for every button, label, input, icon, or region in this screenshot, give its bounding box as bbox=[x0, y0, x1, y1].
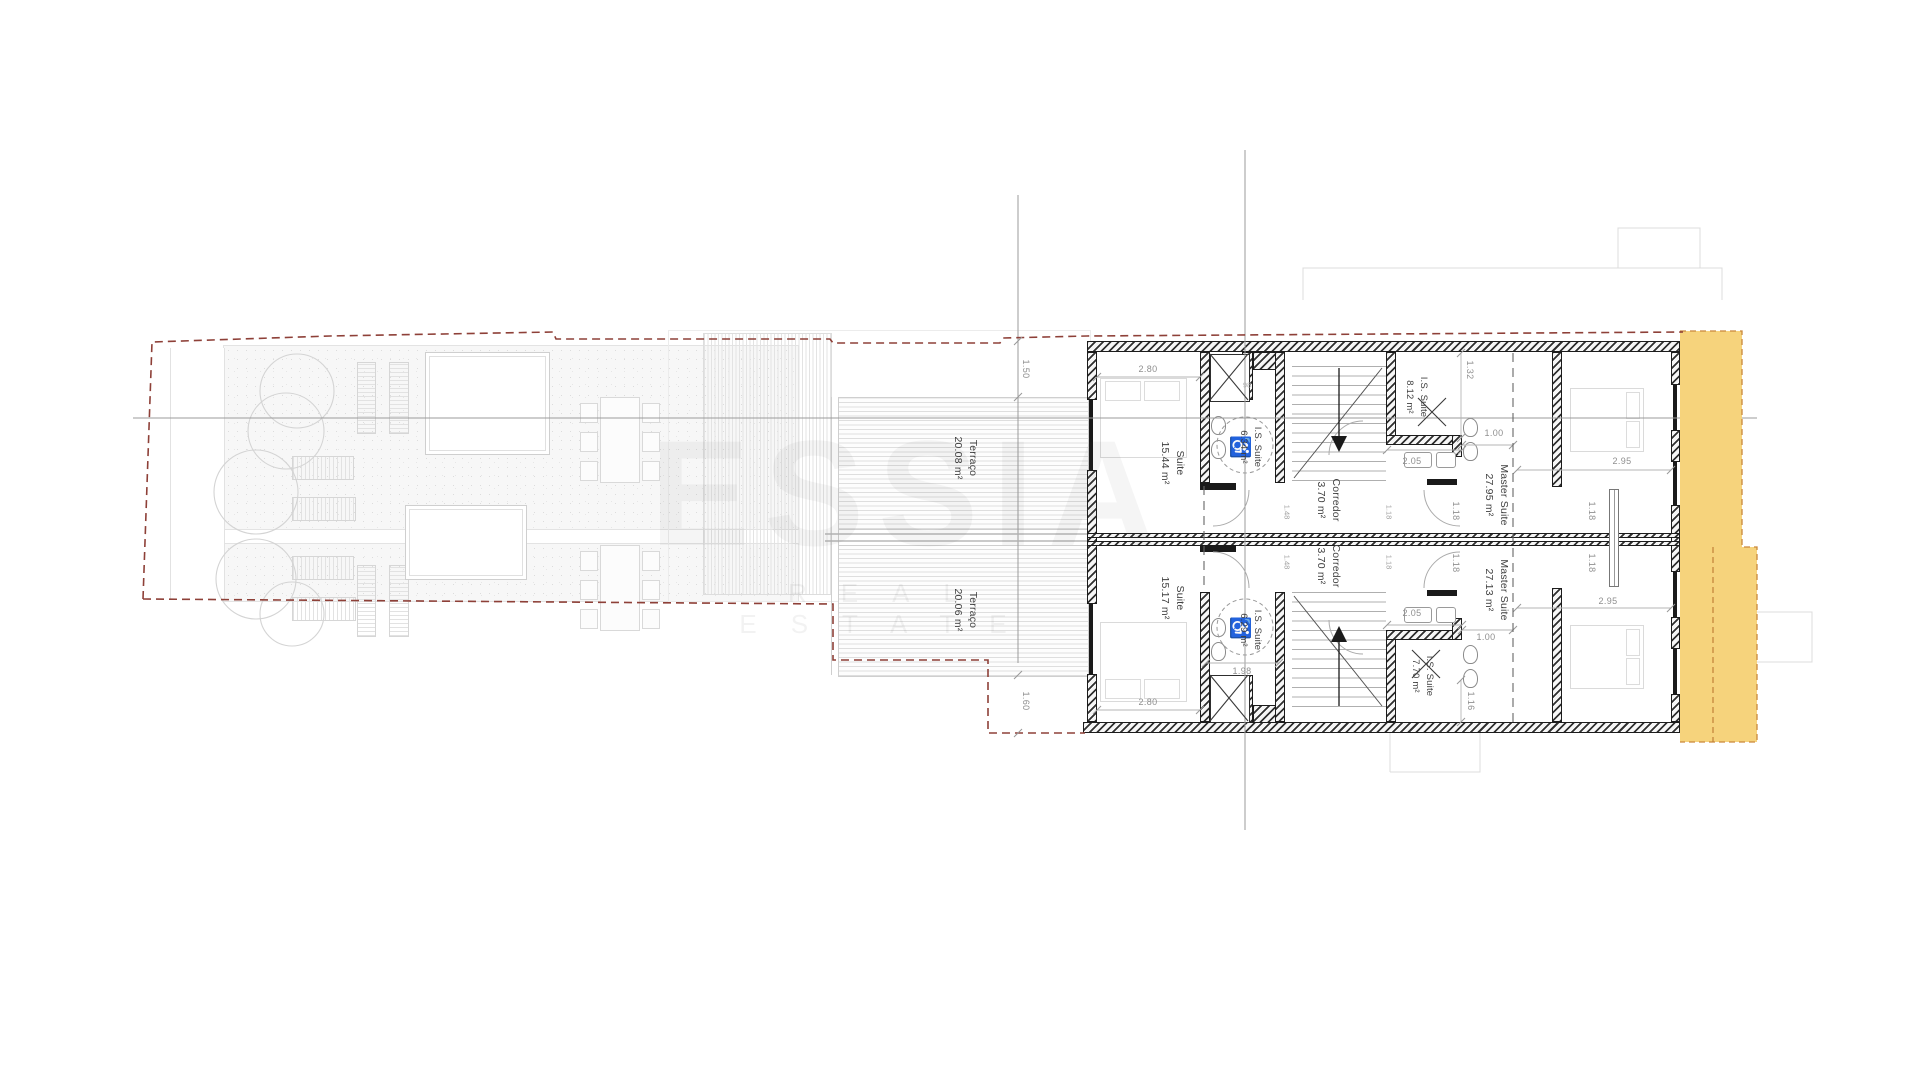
dim-door: 1.48 bbox=[1283, 505, 1292, 520]
dim-suite-width-b: 2.80 bbox=[1138, 697, 1157, 707]
dim-door: 1.48 bbox=[1283, 555, 1292, 570]
room-area: 7.70 m² bbox=[1408, 656, 1422, 697]
room-name: Suite bbox=[1172, 441, 1187, 484]
room-label-suite-a: Suite 15.44 m² bbox=[1157, 441, 1187, 484]
room-name: I.S. Suite bbox=[1250, 610, 1264, 651]
stair-arrow-up-icon bbox=[1331, 626, 1347, 642]
room-area: 27.95 m² bbox=[1481, 464, 1496, 525]
stair-break-line bbox=[1294, 368, 1382, 706]
dim-counter-a: 2.05 bbox=[1402, 456, 1421, 466]
dim-master-width-b: 2.95 bbox=[1598, 596, 1617, 606]
tree-icon bbox=[248, 393, 324, 469]
room-name: Terraço bbox=[965, 436, 980, 479]
room-area: 20.06 m² bbox=[950, 588, 965, 631]
room-area: 6.29 m² bbox=[1236, 610, 1250, 651]
tree-icon bbox=[214, 450, 298, 534]
dim-lines bbox=[1097, 353, 1671, 722]
room-area: 3.70 m² bbox=[1313, 478, 1328, 521]
room-area: 15.17 m² bbox=[1157, 576, 1172, 619]
floor-plan-canvas: ESSIA REAL ESTATE ♿ ♿ Terraço 20.08 m² T… bbox=[0, 0, 1920, 1080]
shower-x-icon bbox=[1210, 354, 1248, 400]
room-label-corridor-a: Corredor 3.70 m² bbox=[1313, 478, 1343, 521]
dim-door-small: 1.18 bbox=[1385, 555, 1394, 570]
dim-setback-top: 1.50 bbox=[1021, 359, 1031, 378]
dim-suite-width-a: 2.80 bbox=[1138, 364, 1157, 374]
tree-icon bbox=[260, 582, 324, 646]
room-name: I.S. Suite bbox=[1250, 427, 1264, 468]
dim-closet: 1.18 bbox=[1451, 553, 1461, 572]
dim-bath-a: 1.32 bbox=[1465, 360, 1475, 379]
room-label-terrace-a: Terraço 20.08 m² bbox=[950, 436, 980, 479]
room-area: 15.44 m² bbox=[1157, 441, 1172, 484]
room-name: Corredor bbox=[1328, 544, 1343, 587]
dim-passage-a: 1.00 bbox=[1484, 428, 1503, 438]
room-label-terrace-b: Terraço 20.06 m² bbox=[950, 588, 980, 631]
room-name: Master Suite bbox=[1496, 559, 1511, 620]
room-name: I.S. Suite bbox=[1416, 377, 1430, 418]
dim-bath-b: 1.16 bbox=[1466, 691, 1476, 710]
room-area: 6.34 m² bbox=[1236, 427, 1250, 468]
dimension-lines bbox=[1097, 353, 1671, 722]
room-area: 27.13 m² bbox=[1481, 559, 1496, 620]
stair-arrow-down-icon bbox=[1331, 436, 1347, 452]
room-area: 20.08 m² bbox=[950, 436, 965, 479]
trees bbox=[214, 354, 334, 646]
highlight-fill bbox=[1680, 331, 1757, 742]
watermark-title: ESSIA bbox=[650, 418, 1130, 568]
room-label-is-small-a: I.S. Suite 6.34 m² bbox=[1236, 427, 1264, 468]
tree-icon bbox=[260, 354, 334, 428]
room-label-is-small-b: I.S. Suite 6.29 m² bbox=[1236, 610, 1264, 651]
dim-setback-bottom: 1.60 bbox=[1021, 691, 1031, 710]
dim-closet: 1.18 bbox=[1587, 501, 1597, 520]
dim-counter-b: 2.05 bbox=[1402, 608, 1421, 618]
dim-door-small: 1.18 bbox=[1385, 505, 1394, 520]
watermark-subtitle: REAL ESTATE bbox=[630, 578, 1150, 640]
neighbour-lines-right bbox=[1757, 612, 1812, 662]
shower-x-icon bbox=[1210, 675, 1248, 721]
room-label-master-b: Master Suite 27.13 m² bbox=[1481, 559, 1511, 620]
room-label-is-a: I.S. Suite 8.12 m² bbox=[1402, 377, 1430, 418]
dim-closet: 1.18 bbox=[1587, 553, 1597, 572]
neighbour-lines-bottom bbox=[1390, 733, 1480, 772]
room-name: Corredor bbox=[1328, 478, 1343, 521]
room-area: 3.70 m² bbox=[1313, 544, 1328, 587]
room-area: 8.12 m² bbox=[1402, 377, 1416, 418]
room-label-master-a: Master Suite 27.95 m² bbox=[1481, 464, 1511, 525]
neighbour-building-top bbox=[1303, 268, 1722, 300]
dim-master-width-a: 2.95 bbox=[1612, 456, 1631, 466]
room-name: Master Suite bbox=[1496, 464, 1511, 525]
dim-closet: 1.18 bbox=[1451, 501, 1461, 520]
tree-icon bbox=[216, 539, 296, 619]
room-name: I.S. Suite bbox=[1422, 656, 1436, 697]
dim-passage-b: 1.00 bbox=[1476, 632, 1495, 642]
room-label-is-b: I.S. Suite 7.70 m² bbox=[1408, 656, 1436, 697]
highlight-strip bbox=[1680, 331, 1757, 742]
room-name: Suite bbox=[1172, 576, 1187, 619]
dim-bath-width-b: 1.98 bbox=[1232, 666, 1251, 676]
room-name: Terraço bbox=[965, 588, 980, 631]
room-label-suite-b: Suite 15.17 m² bbox=[1157, 576, 1187, 619]
stair-direction bbox=[1294, 368, 1382, 706]
dim-shower: 98 bbox=[1243, 381, 1251, 390]
room-label-corridor-b: Corredor 3.70 m² bbox=[1313, 544, 1343, 587]
neighbour-annex-top bbox=[1618, 228, 1700, 268]
